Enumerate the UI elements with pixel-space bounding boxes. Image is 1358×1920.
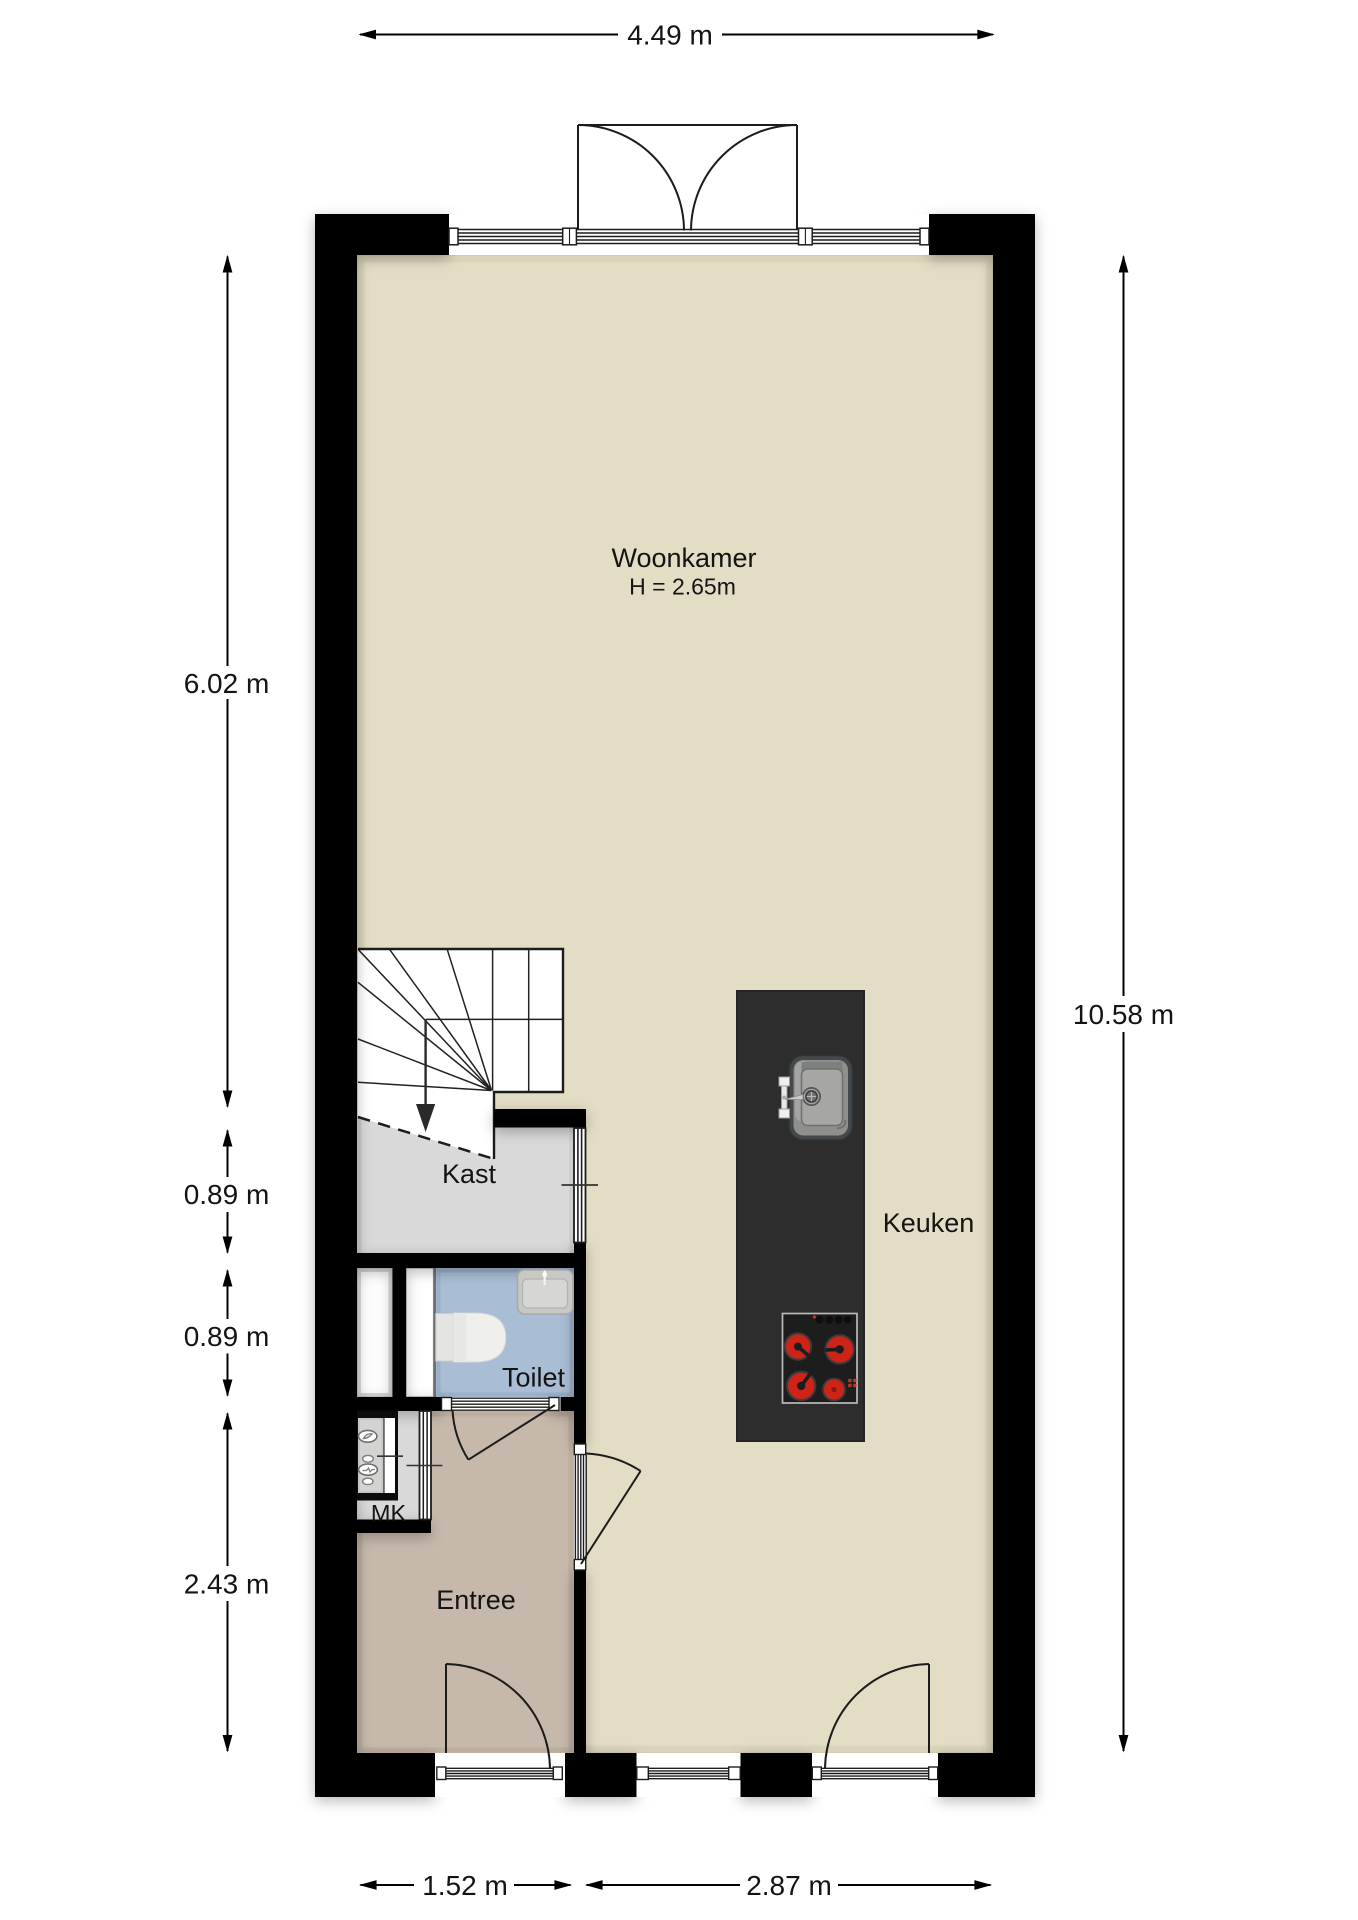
svg-text:1.52 m: 1.52 m: [422, 1870, 508, 1901]
svg-text:Entree: Entree: [436, 1585, 516, 1615]
svg-text:6.02 m: 6.02 m: [184, 668, 270, 699]
svg-text:0.89 m: 0.89 m: [184, 1321, 270, 1352]
svg-text:Keuken: Keuken: [883, 1208, 975, 1238]
svg-text:H = 2.65m: H = 2.65m: [629, 574, 736, 600]
svg-text:Woonkamer: Woonkamer: [611, 543, 756, 573]
svg-text:2.87 m: 2.87 m: [746, 1870, 832, 1901]
svg-text:0.89 m: 0.89 m: [184, 1179, 270, 1210]
svg-text:2.43 m: 2.43 m: [184, 1569, 270, 1600]
svg-text:4.49 m: 4.49 m: [627, 20, 713, 51]
svg-text:MK: MK: [371, 1500, 407, 1526]
svg-text:Toilet: Toilet: [502, 1363, 566, 1393]
svg-text:10.58 m: 10.58 m: [1073, 999, 1174, 1030]
svg-text:Kast: Kast: [442, 1159, 497, 1189]
